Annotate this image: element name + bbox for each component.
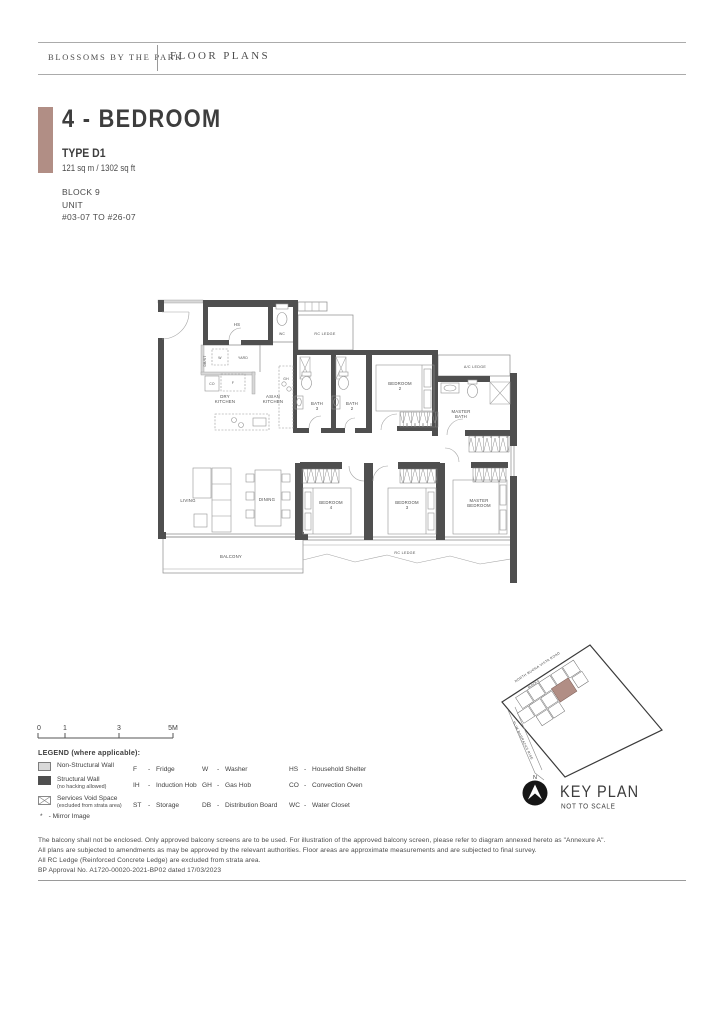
label-washer: W — [218, 356, 222, 360]
label-fridge: F — [232, 381, 234, 385]
label-master-bedroom-2: BEDROOM — [467, 503, 491, 508]
key-plan-title-group: KEY PLAN — [560, 783, 639, 801]
scale-tick-5m: 5M — [168, 725, 178, 732]
structural-wall-swatch — [38, 776, 51, 785]
accent-bar — [38, 107, 53, 173]
legend-mirror-note: *- Mirror Image — [40, 813, 90, 820]
unit-label: UNIT — [62, 199, 136, 212]
key-plan-subtitle-group: NOT TO SCALE — [561, 803, 616, 810]
page-title: 4 - BEDROOM — [62, 105, 245, 134]
legend-abbr-col-1: F-Fridge IH-Induction Hob ST-Storage — [133, 762, 197, 815]
label-bedroom3-2: 3 — [406, 505, 409, 510]
label-living: LIVING — [180, 498, 196, 503]
footnote-line: BP Approval No. A1720-00020-2021-BP02 da… — [38, 866, 698, 876]
legend-title: LEGEND (where applicable): — [38, 748, 140, 757]
label-bedroom2-2: 2 — [399, 386, 402, 391]
site-buildings — [510, 660, 595, 734]
label-bedroom4-2: 4 — [330, 505, 333, 510]
scale-tick-3: 3 — [117, 725, 121, 732]
brand-logo: BLOSSOMS BY THE PARK — [48, 52, 183, 62]
label-asian-kitchen-2: KITCHEN — [263, 399, 283, 404]
legend-abbr-col-2: W-Washer GH-Gas Hob DB-Distribution Boar… — [202, 762, 277, 815]
block-label: BLOCK 9 — [62, 186, 136, 199]
label-balcony: BALCONY — [220, 554, 242, 559]
unit-area: 121 sq m / 1302 sq ft — [62, 163, 146, 173]
non-structural-wall-swatch — [38, 762, 51, 771]
unit-info: BLOCK 9 UNIT #03-07 TO #26-07 — [62, 186, 136, 224]
legend-item-services-void: Services Void Space (excluded from strat… — [38, 795, 138, 815]
label-rc-ledge-bottom: RC LEDGE — [394, 551, 415, 555]
section-title: FLOOR PLANS — [170, 50, 270, 62]
footer-rule — [38, 880, 686, 881]
footnote-line: All RC Ledge (Reinforced Concrete Ledge)… — [38, 856, 698, 866]
scale-tick-1: 1 — [63, 725, 67, 732]
master-bedroom-window — [508, 446, 518, 476]
unit-range: #03-07 TO #26-07 — [62, 211, 136, 224]
footnotes: The balcony shall not be enclosed. Only … — [38, 836, 698, 876]
unit-type: TYPE D1 — [62, 146, 112, 160]
label-dining: DINING — [259, 497, 276, 502]
legend-wall-items: Non-Structural Wall Structural Wall (no … — [38, 762, 138, 815]
header-rule-top — [38, 42, 686, 43]
label-master-bath-2: BATH — [455, 414, 467, 419]
legend-item-non-structural: Non-Structural Wall — [38, 762, 138, 776]
label-db-st: DB/ST — [203, 356, 207, 367]
label-ac-ledge: A/C LEDGE — [464, 365, 487, 369]
label-gh: GH — [283, 377, 289, 381]
scale-bar: 0 1 3 5M — [36, 720, 196, 748]
footnote-line: The balcony shall not be enclosed. Only … — [38, 836, 698, 846]
floor-plan: HS WC RC LEDGE DB/ST W YARD CO F DRY KIT… — [155, 288, 545, 595]
key-plan: NORTH BUONA VISTA ROAD BLOCK 9 SLIM BARR… — [488, 640, 703, 820]
legend-abbr-col-3: HS-Household Shelter CO-Convection Oven … — [289, 762, 366, 815]
north-label: N — [533, 775, 537, 781]
floor-plan-structural-walls — [158, 300, 517, 583]
legend-item-structural: Structural Wall (no hacking allowed) — [38, 776, 138, 795]
label-wc: WC — [279, 332, 285, 336]
header-divider — [157, 45, 158, 71]
label-yard: YARD — [238, 356, 248, 360]
key-plan-title: KEY PLAN — [560, 783, 639, 801]
label-rc-ledge-top: RC LEDGE — [314, 332, 335, 336]
header-rule-bottom — [38, 74, 686, 75]
label-bath2-2: 2 — [351, 406, 354, 411]
key-plan-subtitle: NOT TO SCALE — [561, 803, 616, 810]
scale-tick-0: 0 — [37, 725, 41, 732]
footnote-line: All plans are subjected to amendments as… — [38, 846, 698, 856]
label-hs: HS — [234, 322, 240, 327]
brochure-page: BLOSSOMS BY THE PARK FLOOR PLANS 4 - BED… — [0, 0, 724, 1024]
label-bath3-2: 3 — [316, 406, 319, 411]
services-void-swatch — [38, 796, 51, 805]
label-dry-kitchen-2: KITCHEN — [215, 399, 235, 404]
label-co: CO — [209, 382, 215, 386]
